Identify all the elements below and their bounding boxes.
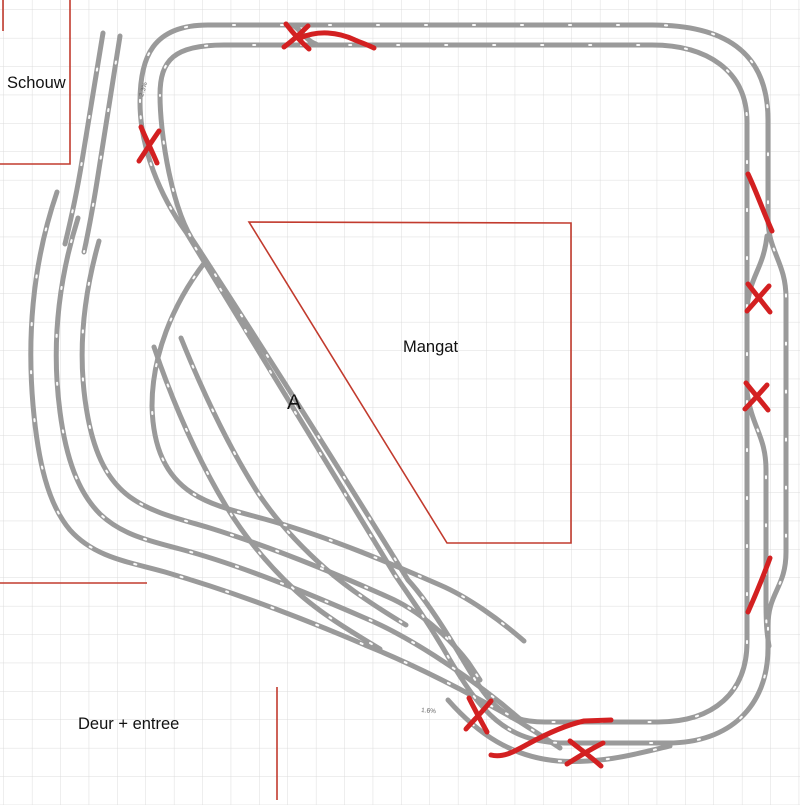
track-plan-svg: Schouw Mangat A Deur + entree 2.3% 1.6% — [0, 0, 800, 805]
track-plan-canvas: Schouw Mangat A Deur + entree 2.3% 1.6% — [0, 0, 800, 805]
area-label-mangat: Mangat — [403, 338, 458, 356]
grade-label-bottom: 1.6% — [421, 707, 437, 715]
room-label-schouw: Schouw — [7, 74, 66, 92]
track-group-label-a: A — [287, 391, 301, 414]
room-label-deur-entree: Deur + entree — [78, 715, 179, 733]
grid-background — [0, 0, 800, 805]
